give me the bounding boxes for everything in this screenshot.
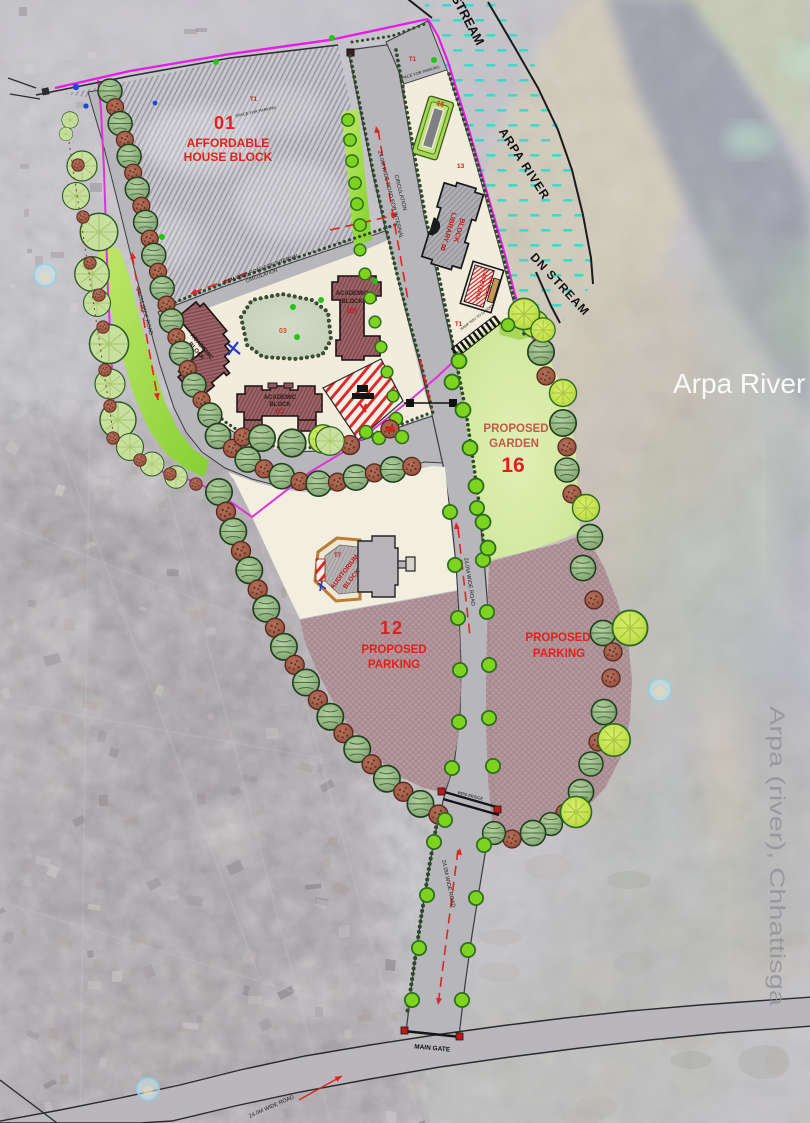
svg-text:12: 12	[380, 618, 404, 638]
svg-text:T1: T1	[409, 57, 417, 63]
svg-text:PARKING: PARKING	[368, 659, 420, 671]
svg-text:HOUSE BLOCK: HOUSE BLOCK	[184, 150, 273, 164]
svg-text:(B): (B)	[347, 308, 357, 315]
svg-text:PROPOSED: PROPOSED	[483, 423, 548, 435]
svg-text:Arpa (river), Chhattisga: Arpa (river), Chhattisga	[765, 706, 788, 1006]
svg-text:BLOCK: BLOCK	[341, 299, 363, 305]
svg-text:T7: T7	[334, 553, 342, 559]
svg-text:PARKING: PARKING	[533, 648, 585, 660]
svg-text:PROPOSED: PROPOSED	[525, 632, 590, 644]
svg-text:PROPOSED: PROPOSED	[361, 644, 426, 656]
svg-text:T1: T1	[455, 322, 463, 328]
svg-text:GARDEN: GARDEN	[489, 438, 539, 450]
svg-text:T1: T1	[250, 97, 258, 103]
svg-text:BLOCK: BLOCK	[269, 402, 291, 408]
svg-text:Arpa River: Arpa River	[673, 368, 805, 399]
svg-text:16: 16	[501, 454, 524, 477]
svg-text:(C): (C)	[276, 409, 284, 415]
svg-text:01: 01	[214, 113, 236, 133]
svg-text:AFFORDABLE: AFFORDABLE	[187, 136, 270, 150]
svg-text:13: 13	[457, 163, 465, 170]
svg-text:03: 03	[279, 328, 287, 335]
svg-text:ACADEMIC: ACADEMIC	[264, 395, 297, 401]
